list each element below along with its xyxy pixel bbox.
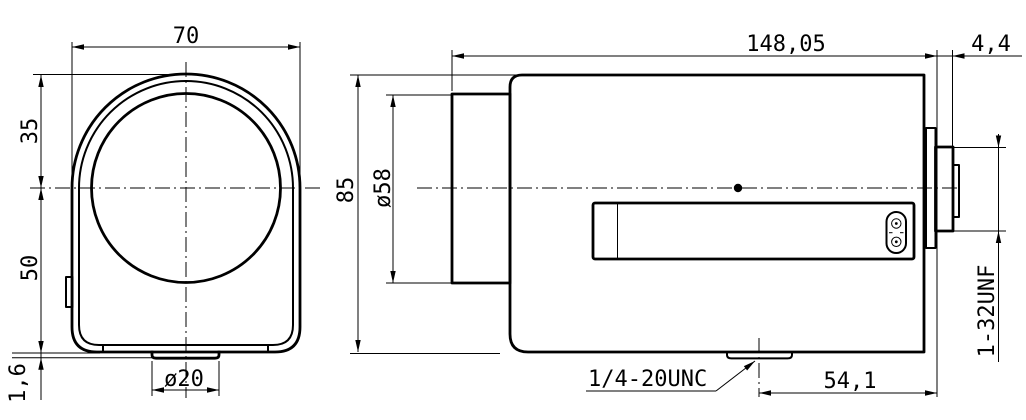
dim-label-tripod-to-rear: 54,1 bbox=[824, 369, 877, 394]
dim-center-to-bottom-50: 50 bbox=[12, 188, 100, 353]
dim-label-body-length: 148,05 bbox=[746, 32, 825, 57]
dim-body-height-85: 85 bbox=[334, 75, 520, 354]
dim-label-center-to-bottom: 50 bbox=[18, 255, 43, 282]
dim-label-body-height: 85 bbox=[334, 177, 359, 204]
dim-top-to-center-35: 35 bbox=[18, 75, 188, 189]
side-latch-tab bbox=[66, 277, 73, 307]
dim-tripod-to-rear-54-1: 54,1 bbox=[759, 369, 937, 394]
label-tripod-thread: 1/4-20UNC bbox=[588, 367, 707, 392]
dim-barrel-diameter-58: ø58 bbox=[371, 95, 452, 283]
dim-rear-mount-thread: 1-32UNF bbox=[953, 134, 1006, 362]
dim-boss-height-1-6: 1,6 bbox=[6, 353, 152, 403]
drawing-canvas: 70 35 50 1,6 ø20 bbox=[0, 0, 1026, 420]
rear-mount-stub bbox=[953, 165, 959, 217]
side-slot-panel bbox=[593, 203, 914, 259]
drawing-page: 70 35 50 1,6 ø20 bbox=[0, 0, 1026, 420]
dim-body-length-148: 148,05 bbox=[452, 32, 953, 397]
dim-mount-protrusion-4-4: 4,4 bbox=[937, 32, 1022, 57]
dim-label-boss-diameter: ø20 bbox=[164, 367, 204, 392]
dim-label-mount-protrusion: 4,4 bbox=[971, 32, 1011, 57]
side-view: 148,05 4,4 85 ø58 1/4-20UNC bbox=[334, 32, 1022, 397]
dim-boss-diameter-20: ø20 bbox=[152, 361, 219, 396]
dim-label-barrel-diameter: ø58 bbox=[371, 168, 396, 208]
connector-detail bbox=[887, 212, 907, 253]
side-body-outline bbox=[510, 75, 924, 352]
label-rear-mount-thread: 1-32UNF bbox=[975, 265, 1000, 358]
dim-label-top-to-center: 35 bbox=[18, 118, 43, 145]
dim-label-width: 70 bbox=[173, 24, 200, 49]
dim-label-boss-height: 1,6 bbox=[6, 363, 31, 403]
callout-tripod-thread: 1/4-20UNC bbox=[586, 361, 755, 392]
rear-mount-cylinder bbox=[936, 147, 954, 231]
front-view: 70 35 50 1,6 ø20 bbox=[6, 24, 320, 403]
